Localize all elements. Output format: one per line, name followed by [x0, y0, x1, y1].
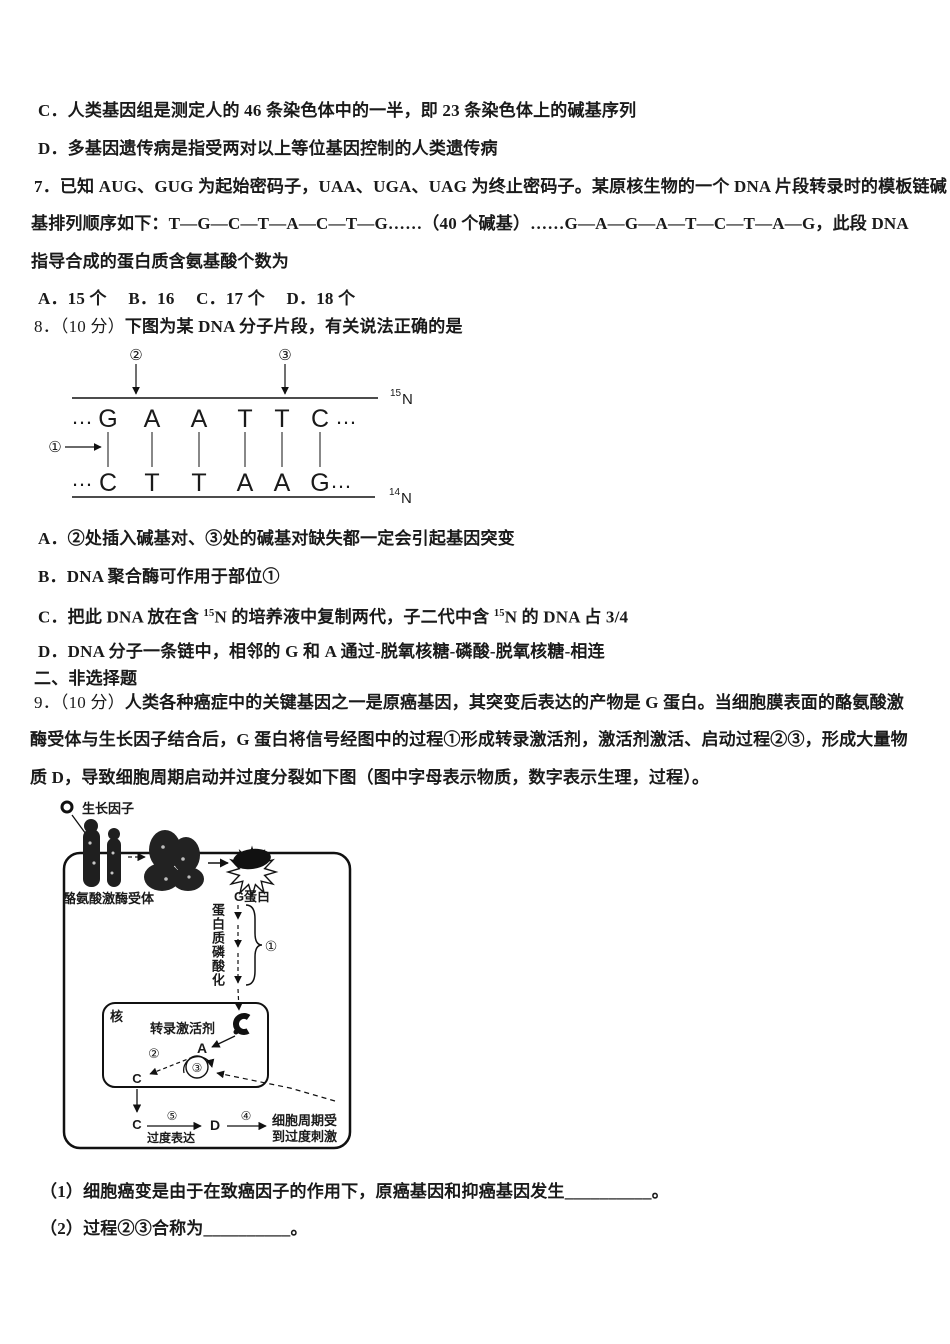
superscript-15n-1: 15: [204, 608, 215, 619]
question8-number: 8．（10 分）: [34, 317, 125, 336]
top-base-3: A: [191, 405, 208, 433]
growth-factor-label: 生长因子: [82, 801, 134, 816]
substance-c-nucleus-label: C: [132, 1071, 142, 1086]
marker-1-label: ①: [48, 439, 61, 456]
question8-option-d: D．DNA 分子一条链中，相邻的 G 和 A 通过-脱氧核糖-磷酸-脱氧核糖-相…: [38, 641, 605, 663]
option-c-mid: N 的培养液中复制两代，子二代中含: [214, 608, 493, 627]
bottom-ellipsis-left: …: [71, 466, 93, 491]
question8-option-b: B．DNA 聚合酶可作用于部位①: [38, 566, 280, 588]
top-ellipsis-right: …: [335, 404, 357, 429]
top-base-1: G: [98, 405, 117, 433]
process2-label: ②: [148, 1046, 160, 1061]
question6-option-d: D．多基因遗传病是指受两对以上等位基因控制的人类遗传病: [38, 138, 498, 160]
receptor-dimer: [144, 830, 204, 891]
question9-sub2: （2）过程②③合称为__________。: [40, 1218, 308, 1240]
process4-label: ④: [241, 1109, 252, 1123]
substance-c-cytoplasm-label: C: [132, 1117, 142, 1132]
bottom-base-3: T: [191, 469, 206, 497]
top-ellipsis-left: …: [71, 404, 93, 429]
n15-label: N: [402, 391, 413, 408]
question9-number: 9．（10 分）: [34, 693, 125, 712]
cell-pathway-figure: 生长因子 酪氨酸激酶受体: [50, 795, 470, 1170]
gprotein-label: G蛋白: [234, 889, 270, 904]
nucleus-label: 核: [110, 1009, 123, 1024]
activator-dot: [234, 1030, 239, 1035]
stimulus-line1: 细胞周期受: [272, 1113, 337, 1128]
activator-label: 转录激活剂: [150, 1021, 215, 1036]
question7-options: A．15 个 B．16 C．17 个 D．18 个: [38, 288, 355, 310]
marker-2-label: ②: [129, 347, 142, 364]
n14-label: N: [401, 490, 412, 507]
option-c-post: N 的 DNA 占 3/4: [505, 608, 629, 627]
question9-line1-text: 人类各种癌症中的关键基因之一是原癌基因，其突变后表达的产物是 G 蛋白。当细胞膜…: [125, 693, 904, 712]
question9-line3: 质 D，导致细胞周期启动并过度分裂如下图（图中字母表示物质，数字表示生理，过程）…: [30, 767, 709, 789]
n15-superscript: 15: [390, 388, 402, 399]
exam-page: C．人类基因组是测定人的 46 条染色体中的一半，即 23 条染色体上的碱基序列…: [0, 0, 950, 1344]
overexpression-label: 过度表达: [147, 1130, 195, 1145]
question6-option-c: C．人类基因组是测定人的 46 条染色体中的一半，即 23 条染色体上的碱基序列: [38, 100, 636, 122]
substance-d-label: D: [210, 1117, 220, 1133]
question8-option-a: A．②处插入碱基对、③处的碱基对缺失都一定会引起基因突变: [38, 528, 515, 550]
question7-line2: 基排列顺序如下：T—G—C—T—A—C—T—G……（40 个碱基）……G—A—G…: [31, 213, 909, 235]
process1-brace: [246, 905, 262, 985]
dna-fragment-figure: ② ③ 15 N 14 N … G A A T T C … ① … C T T: [38, 336, 458, 516]
substance-a-label: A: [197, 1040, 207, 1056]
cascade-to-nucleus-arrow: [238, 989, 239, 1010]
process5-label: ⑤: [167, 1109, 178, 1123]
question9-line1: 9．（10 分）人类各种癌症中的关键基因之一是原癌基因，其突变后表达的产物是 G…: [34, 692, 904, 714]
superscript-15n-2: 15: [494, 608, 505, 619]
process3-label: ③: [192, 1061, 203, 1075]
bottom-base-2: T: [144, 469, 159, 497]
question7-line3: 指导合成的蛋白质含氨基酸个数为: [31, 251, 289, 273]
bottom-base-5: A: [274, 469, 291, 497]
bottom-base-4: A: [237, 469, 254, 497]
top-base-6: C: [311, 405, 329, 433]
growth-factor-dot: [62, 802, 72, 812]
n14-superscript: 14: [389, 487, 401, 498]
top-base-4: T: [237, 405, 252, 433]
top-base-2: A: [144, 405, 161, 433]
question8-stem-text: 下图为某 DNA 分子片段，有关说法正确的是: [125, 317, 463, 336]
process1-label: ①: [265, 938, 278, 954]
question7-line1: 7．已知 AUG、GUG 为起始密码子，UAA、UGA、UAG 为终止密码子。某…: [34, 176, 947, 198]
bottom-ellipsis-right: …: [330, 468, 352, 493]
section2-title: 二、非选择题: [34, 668, 137, 690]
stimulus-line2: 到过度刺激: [272, 1129, 338, 1144]
phosphorylation-label: 蛋白质磷酸化: [209, 903, 227, 998]
bottom-base-1: C: [99, 469, 117, 497]
activator-to-a-arrow: [212, 1036, 235, 1047]
question9-sub1: （1）细胞癌变是由于在致癌因子的作用下，原癌基因和抑癌基因发生_________…: [40, 1181, 669, 1203]
bottom-base-6: G: [310, 469, 329, 497]
question8-option-c: C．把此 DNA 放在含 15N 的培养液中复制两代，子二代中含 15N 的 D…: [38, 603, 628, 629]
top-base-5: T: [274, 405, 289, 433]
receptor-label: 酪氨酸激酶受体: [63, 891, 155, 906]
marker-3-label: ③: [278, 347, 291, 364]
option-c-pre: C．把此 DNA 放在含: [38, 608, 204, 627]
question9-line2: 酶受体与生长因子结合后，G 蛋白将信号经图中的过程①形成转录激活剂，激活剂激活、…: [30, 729, 908, 751]
question8-stem: 8．（10 分）下图为某 DNA 分子片段，有关说法正确的是: [34, 316, 463, 338]
